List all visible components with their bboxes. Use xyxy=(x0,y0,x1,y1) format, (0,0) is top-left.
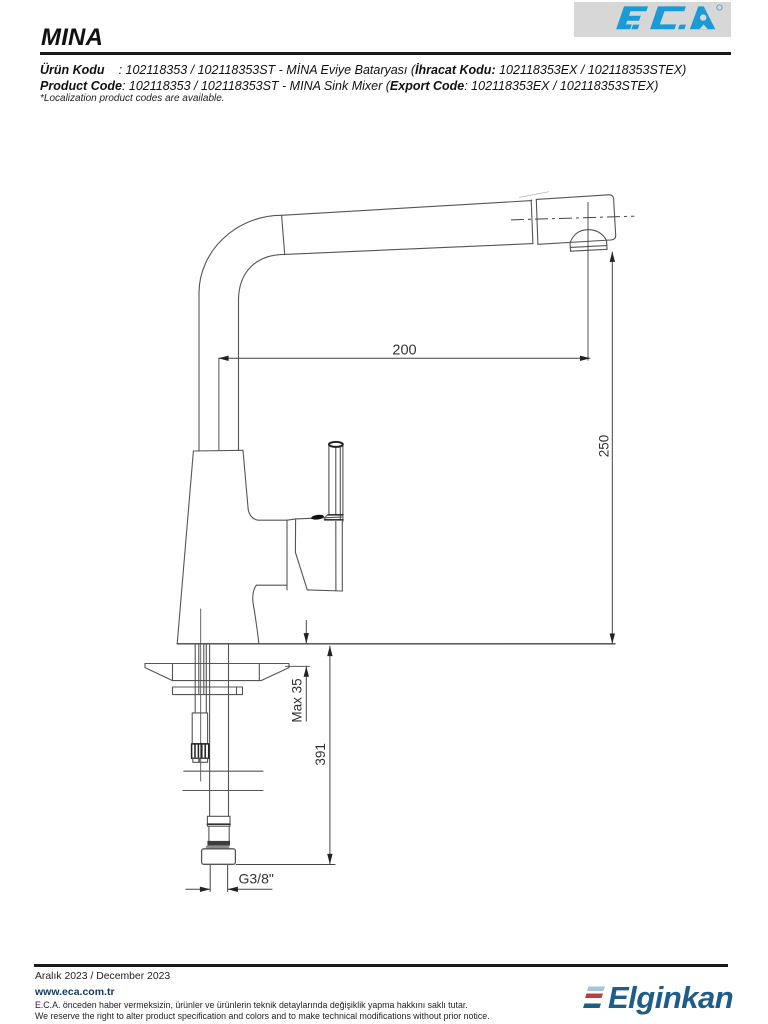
svg-text:G3/8": G3/8" xyxy=(239,871,274,887)
svg-text:391: 391 xyxy=(313,743,328,766)
svg-text:200: 200 xyxy=(392,343,416,359)
svg-text:250: 250 xyxy=(597,435,612,458)
svg-text:Max 35: Max 35 xyxy=(290,678,305,722)
